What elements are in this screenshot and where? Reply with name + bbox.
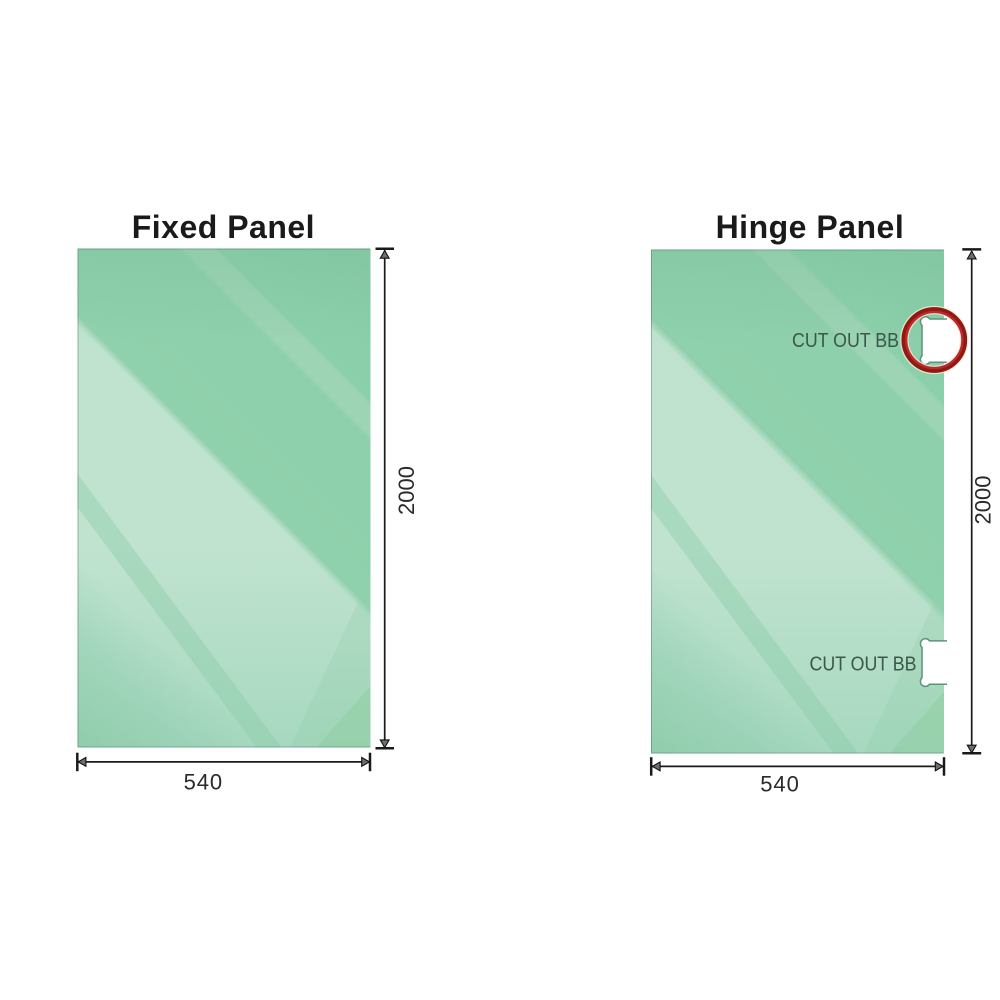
svg-text:Hinge Panel: Hinge Panel (716, 209, 905, 245)
svg-text:540: 540 (760, 772, 799, 797)
svg-text:Fixed Panel: Fixed Panel (132, 209, 315, 245)
svg-text:540: 540 (184, 770, 223, 795)
svg-text:CUT OUT BB: CUT OUT BB (810, 653, 917, 676)
svg-text:CUT OUT BB: CUT OUT BB (792, 329, 899, 352)
svg-text:2000: 2000 (971, 476, 996, 525)
svg-text:2000: 2000 (394, 466, 419, 515)
